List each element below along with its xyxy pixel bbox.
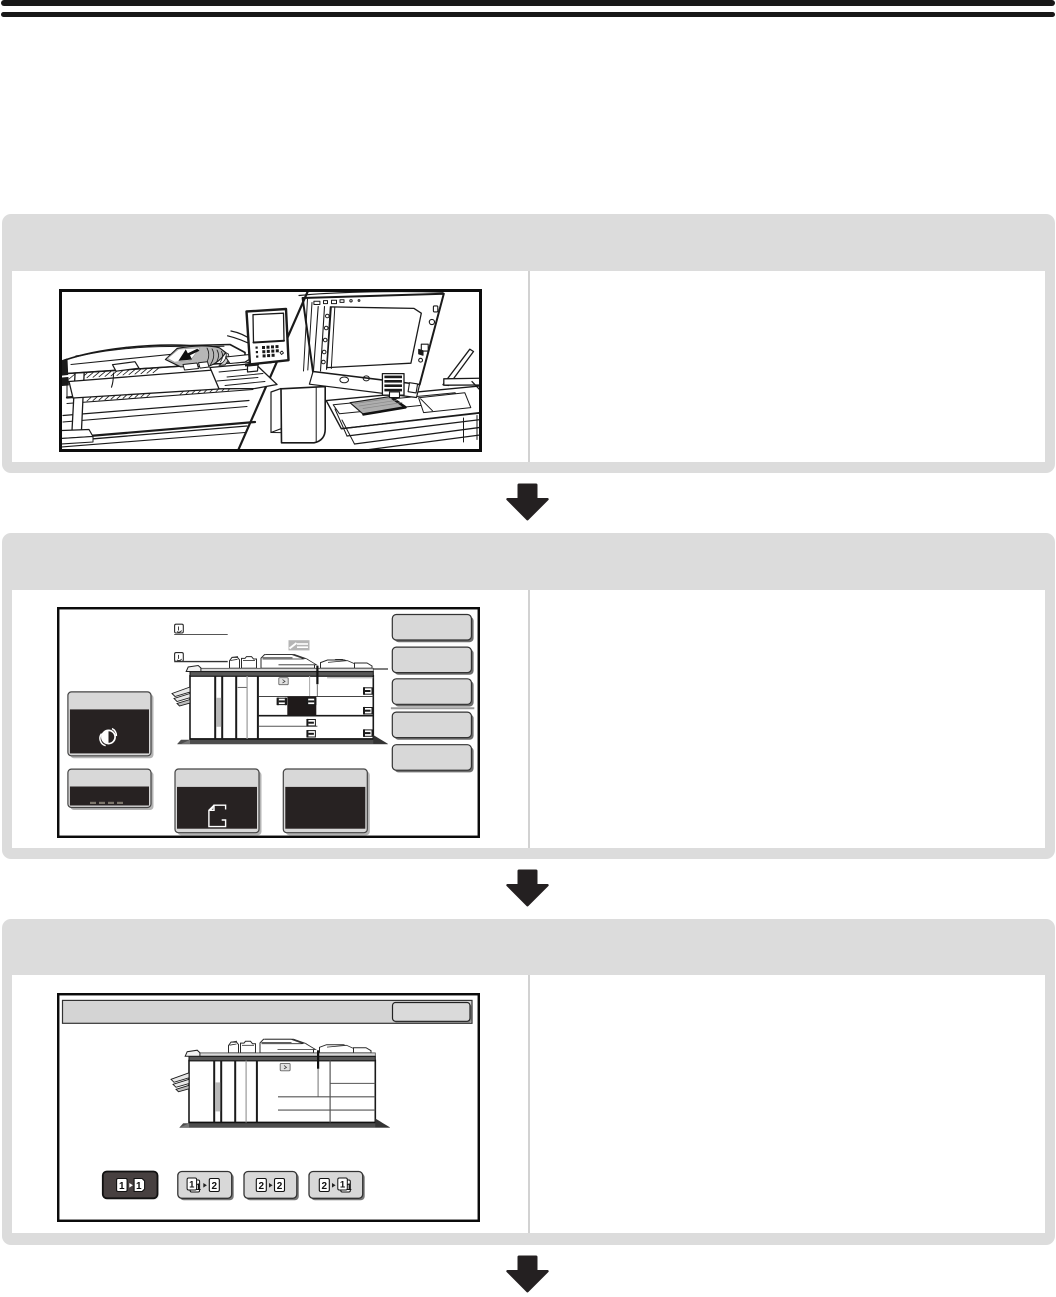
svg-text:2: 2	[259, 1181, 265, 1192]
svg-text:1: 1	[189, 1180, 195, 1191]
svg-text:1: 1	[340, 1180, 346, 1191]
svg-text:2: 2	[277, 1181, 283, 1192]
svg-text:1: 1	[346, 1182, 352, 1193]
svg-text:2: 2	[212, 1181, 218, 1192]
svg-text:1: 1	[136, 1181, 142, 1192]
svg-text:1: 1	[196, 1182, 202, 1193]
svg-text:2: 2	[322, 1181, 328, 1192]
svg-text:1: 1	[119, 1181, 125, 1192]
